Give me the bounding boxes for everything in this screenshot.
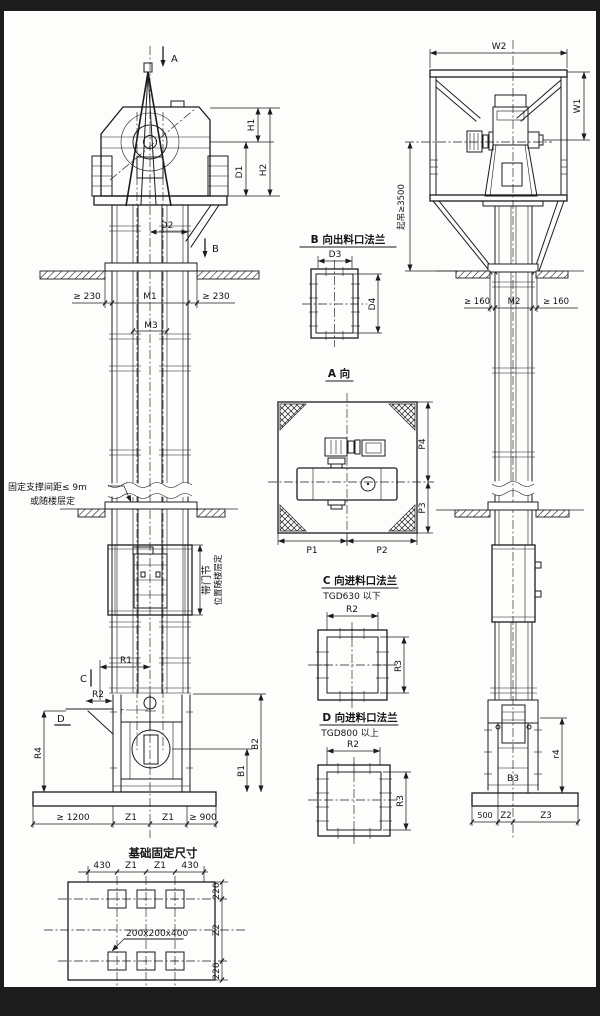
dim-label-r-small: r [120,707,124,717]
side-floor1-slab-right [536,271,568,278]
dim-label-r1: R1 [120,656,132,666]
floor1-slab-right [197,271,259,279]
dim-label-500: 500 [477,811,492,820]
side-floor2-slab-left [455,510,490,517]
floor1-slab-left [40,271,105,279]
dim-label-220-bottom: 220 [212,962,222,979]
support-note-line1: 固定支撑间距≤ 9m [8,481,87,493]
dim-label-clear160-right: ≥ 160 [543,297,569,307]
dim-label-p4: P4 [418,438,428,449]
floor1-collar [105,263,197,271]
dim-label-c-r2: R2 [346,605,358,615]
door-note-line2: 位置随楼层定 [213,554,224,606]
dim-label-base-left: ≥ 1200 [56,813,90,823]
dim-label-fz1-right: Z1 [154,861,166,871]
dim-label-d1: D1 [235,166,245,179]
floor2-slab-left [78,509,105,517]
dim-label-d3: D3 [329,250,342,260]
dim-label-clear230-right: ≥ 230 [202,292,230,302]
dim-label-clear230-left: ≥ 230 [73,292,101,302]
detail-d-subtitle: TGD800 以上 [320,728,378,739]
dim-label-clear160-left: ≥ 160 [464,297,490,307]
dim-label-r4: R4 [34,747,44,759]
dim-label-b1: B1 [237,765,247,777]
dim-label-z2-side: Z2 [500,811,511,821]
dim-label-p1: P1 [306,546,317,556]
section-marker-a: A [171,54,178,65]
dim-label-m3: M3 [144,321,158,331]
dim-label-z1-right: Z1 [162,813,174,823]
dim-label-d-r3: R3 [396,795,406,807]
detail-b-title: B 向出料口法兰 [311,233,386,246]
dim-label-430-right: 430 [181,861,198,871]
side-floor2-slab-right [536,510,569,517]
section-marker-b: B [212,244,219,255]
section-marker-d: D [57,714,65,725]
floor2-collar [105,502,197,509]
dim-label-m2: M2 [508,297,521,307]
dim-label-c-r3: R3 [394,660,404,672]
dim-label-d2: D2 [161,221,174,231]
detail-c-title: C 向进料口法兰 [323,574,398,587]
dim-label-fz1-left: Z1 [125,861,137,871]
dim-label-b2: B2 [251,738,261,750]
dim-label-w1: W1 [573,99,583,114]
floor2-slab-right [197,509,225,517]
detail-c-subtitle: TGD630 以下 [322,592,380,602]
dim-label-p2: P2 [376,546,387,556]
side-floor1-slab-left [456,271,490,278]
dim-label-hoist-height: 起吊≥3500 [397,184,407,230]
dim-label-220-top: 220 [212,882,222,899]
dim-label-h1: H1 [247,119,257,132]
dim-label-d-r2: R2 [347,740,359,750]
support-note-line2: 或随楼层定 [30,495,75,507]
door-note-line1: 带门节 [200,565,213,595]
dim-label-p3: P3 [418,502,428,513]
drawing-canvas: A [0,0,600,1016]
dim-label-b3: B3 [507,774,519,784]
foundation-title: 基础固定尺寸 [128,846,198,860]
view-a-title: A 向 [328,367,350,380]
dim-label-base-right: ≥ 900 [189,813,217,823]
dim-label-r2: R2 [92,690,104,700]
dim-label-r4-side: r4 [552,749,562,759]
pocket-size-label: 200x200x400 [126,929,188,939]
dim-label-430-left: 430 [93,861,110,871]
dim-label-m1: M1 [143,292,157,302]
dim-label-w2: W2 [492,42,507,52]
drawing-sheet: A [0,0,600,1016]
dim-label-h2: H2 [259,164,269,177]
dim-label-z1-left: Z1 [125,813,137,823]
dim-label-z3: Z3 [540,811,551,821]
detail-d-title: D 向进料口法兰 [322,711,398,724]
section-marker-c: C [80,674,87,685]
dim-label-d4: D4 [368,297,378,310]
dim-label-fz2: Z2 [212,924,222,936]
